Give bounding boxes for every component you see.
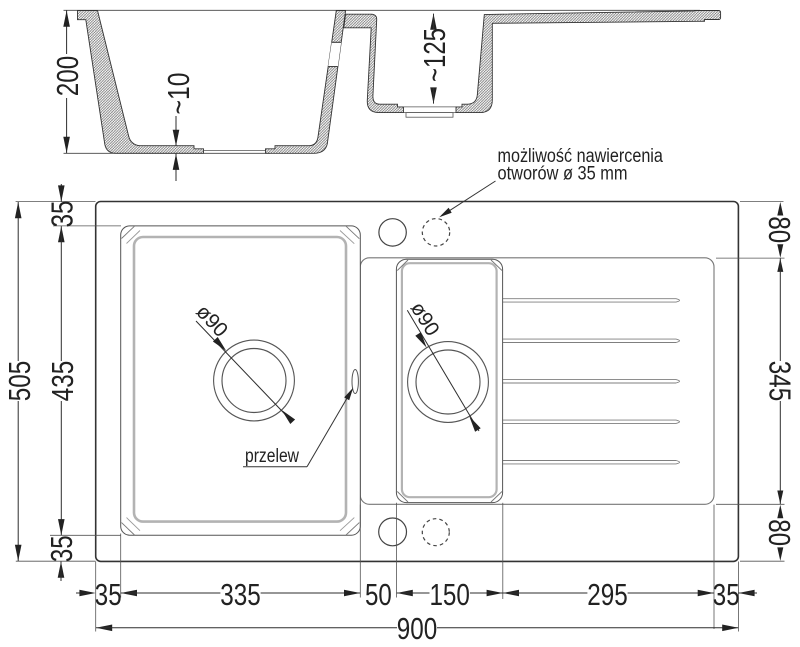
svg-text:50: 50 <box>365 577 392 612</box>
svg-text:150: 150 <box>429 577 470 612</box>
svg-text:900: 900 <box>397 611 438 646</box>
svg-text:35: 35 <box>713 577 740 612</box>
svg-text:200: 200 <box>50 56 85 97</box>
svg-text:~10: ~10 <box>161 73 196 115</box>
svg-text:otworów ø 35 mm: otworów ø 35 mm <box>498 164 628 185</box>
svg-text:435: 435 <box>45 361 80 402</box>
svg-text:35: 35 <box>45 201 80 228</box>
svg-text:335: 335 <box>220 577 261 612</box>
svg-text:35: 35 <box>44 535 79 562</box>
svg-text:80: 80 <box>762 216 797 243</box>
svg-text:~125: ~125 <box>417 28 452 82</box>
svg-text:80: 80 <box>762 519 797 546</box>
svg-text:505: 505 <box>2 361 37 402</box>
svg-text:345: 345 <box>763 361 798 402</box>
svg-text:przelew: przelew <box>245 446 299 467</box>
svg-text:295: 295 <box>587 577 628 612</box>
svg-text:35: 35 <box>95 577 122 612</box>
